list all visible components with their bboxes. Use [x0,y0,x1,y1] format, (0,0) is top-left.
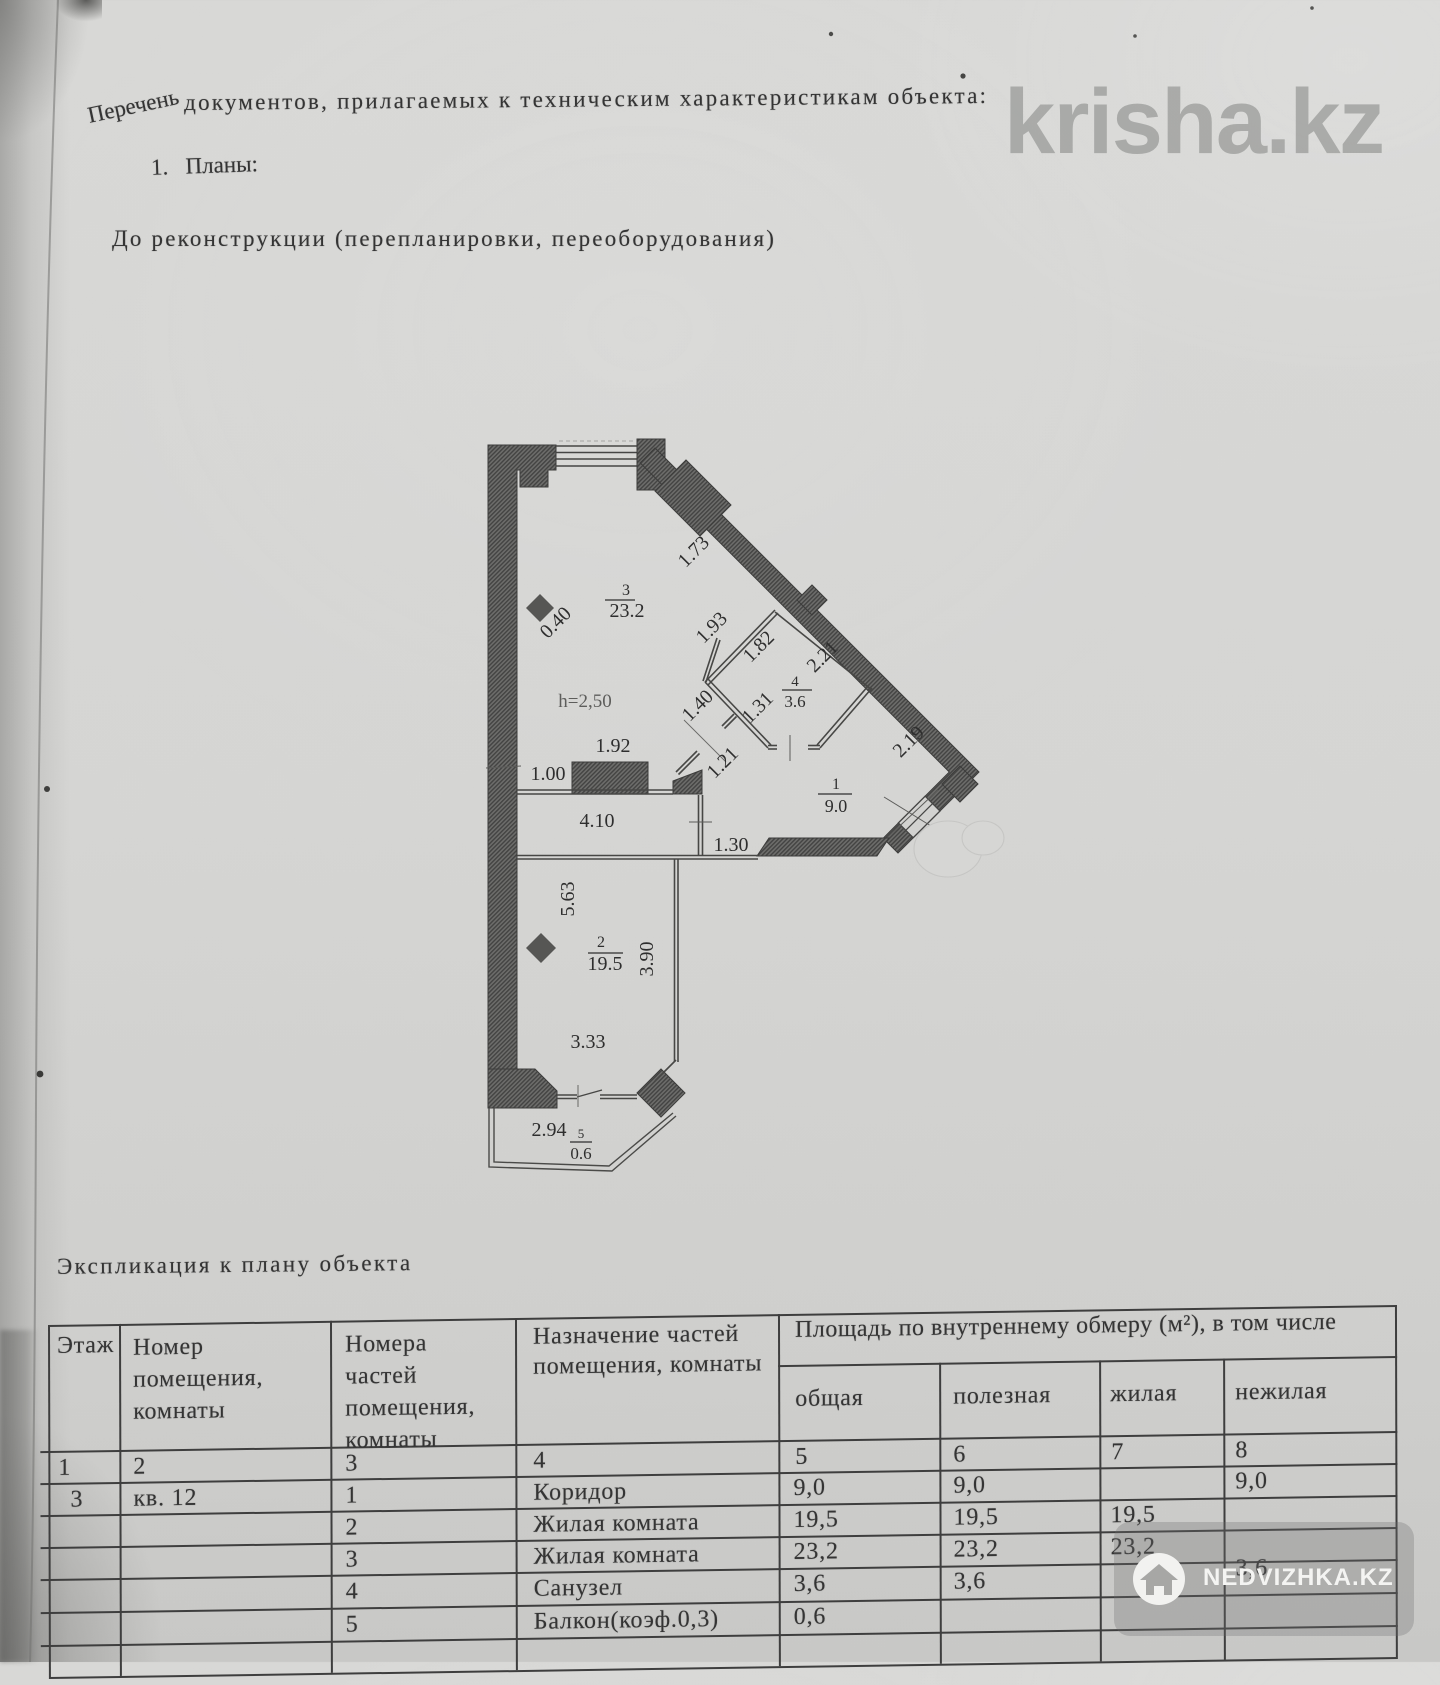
svg-text:5.63: 5.63 [557,882,579,917]
svg-text:2.94: 2.94 [532,1119,567,1141]
svg-text:1.73: 1.73 [674,532,714,572]
svg-text:5: 5 [578,1126,585,1141]
svg-text:3.33: 3.33 [571,1031,606,1053]
svg-text:1.82: 1.82 [739,627,779,667]
svg-text:4: 4 [791,674,799,690]
svg-text:9.0: 9.0 [825,796,848,816]
svg-text:1.40: 1.40 [678,686,718,726]
svg-text:1.00: 1.00 [531,763,566,785]
svg-text:3.90: 3.90 [636,942,658,977]
svg-text:1.30: 1.30 [714,834,749,856]
svg-text:1: 1 [832,776,840,793]
svg-text:4.10: 4.10 [580,810,615,832]
svg-text:1.92: 1.92 [596,735,631,757]
svg-text:2: 2 [597,934,605,951]
svg-text:1.93: 1.93 [692,608,732,648]
svg-text:3.6: 3.6 [784,692,805,711]
svg-text:0.6: 0.6 [570,1144,591,1163]
svg-text:19.5: 19.5 [588,953,623,975]
svg-text:23.2: 23.2 [610,600,645,622]
svg-text:h=2,50: h=2,50 [558,691,611,712]
svg-text:3: 3 [622,582,630,599]
svg-text:1.21: 1.21 [703,743,743,783]
